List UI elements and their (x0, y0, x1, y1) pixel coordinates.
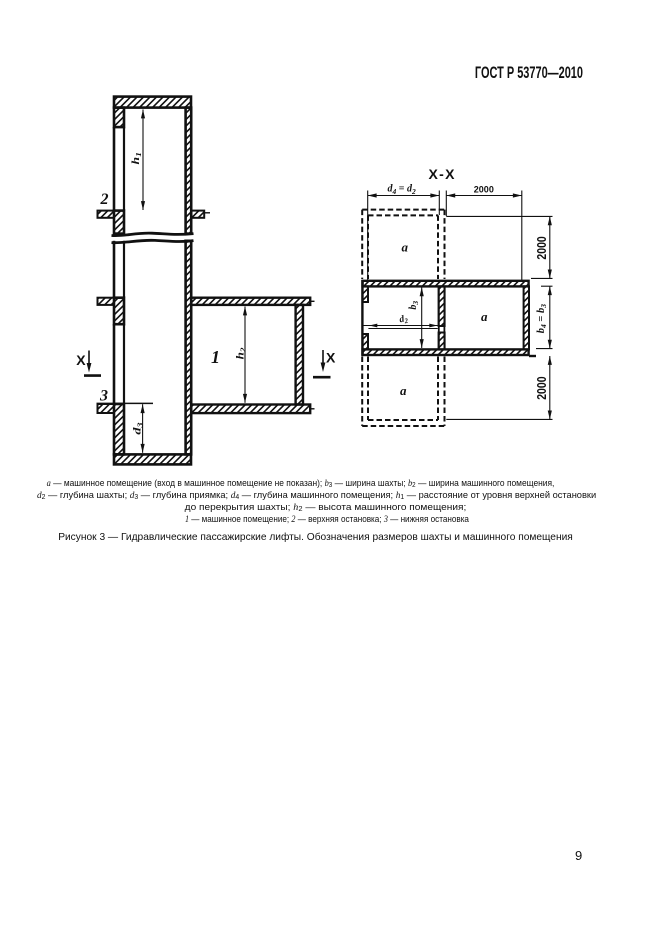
svg-text:d3: d3 (131, 422, 144, 435)
svg-text:a: a (481, 309, 488, 324)
svg-text:b4 = b3: b4 = b3 (536, 304, 548, 333)
svg-text:2000: 2000 (474, 185, 494, 195)
svg-text:1: 1 (211, 347, 220, 367)
svg-text:a: a (402, 240, 409, 255)
svg-text:X: X (76, 352, 86, 368)
svg-text:2: 2 (100, 191, 109, 208)
svg-text:X-X: X-X (429, 166, 456, 182)
svg-text:d4 = d2: d4 = d2 (388, 184, 416, 196)
svg-text:b3: b3 (408, 301, 420, 310)
svg-text:2000: 2000 (534, 376, 549, 400)
svg-text:h2: h2 (234, 347, 247, 359)
svg-text:a: a (400, 383, 407, 398)
svg-text:3: 3 (99, 388, 108, 405)
svg-text:d2: d2 (399, 314, 410, 327)
svg-text:2000: 2000 (534, 236, 549, 260)
svg-text:X: X (326, 350, 336, 366)
svg-text:h1: h1 (129, 152, 142, 164)
